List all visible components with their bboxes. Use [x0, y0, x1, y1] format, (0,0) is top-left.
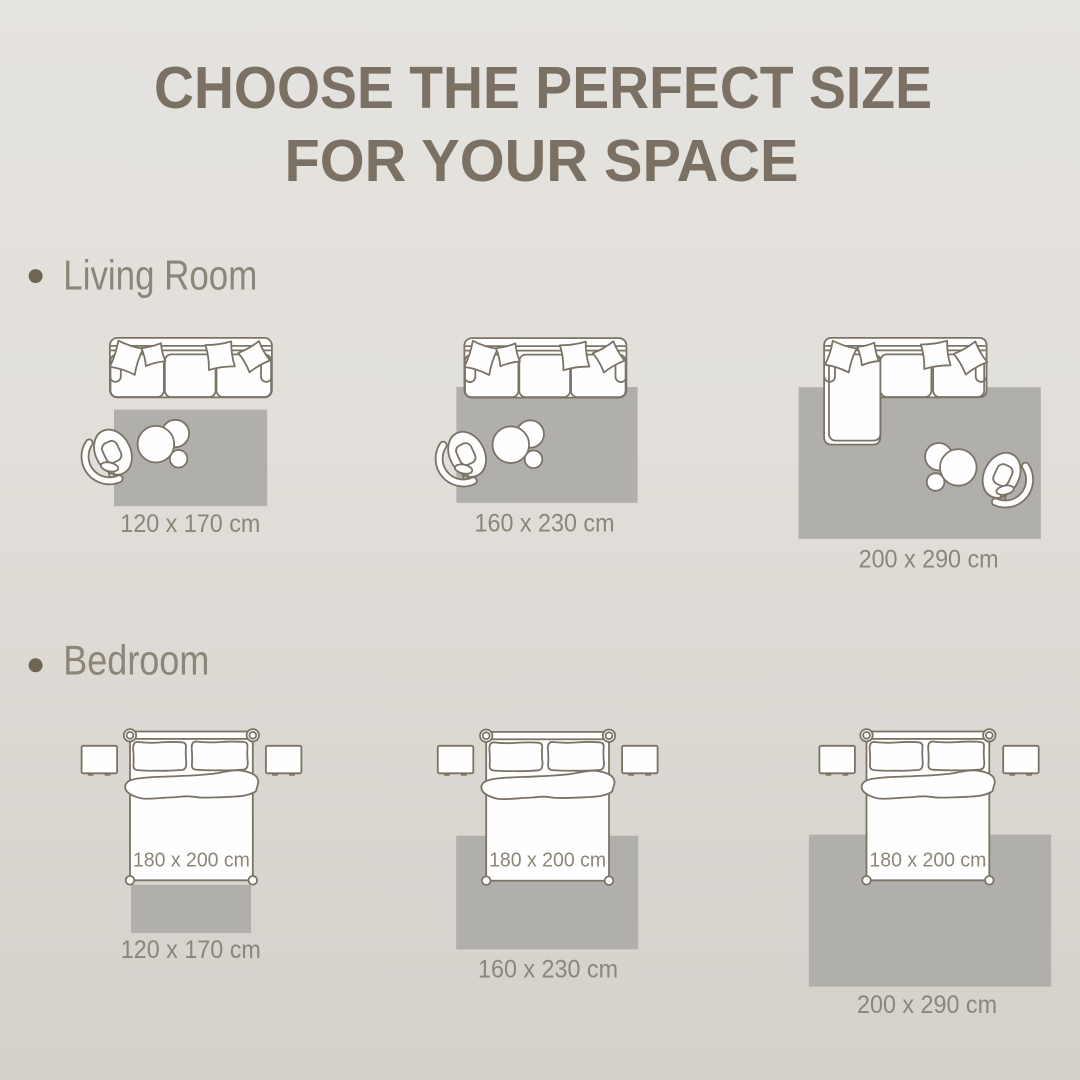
svg-text:FOR YOUR SPACE: FOR YOUR SPACE: [285, 128, 799, 194]
svg-text:160 x 230 cm: 160 x 230 cm: [475, 510, 615, 538]
svg-text:Bedroom: Bedroom: [63, 636, 209, 683]
svg-text:CHOOSE THE PERFECT SIZE: CHOOSE THE PERFECT SIZE: [154, 55, 932, 121]
svg-text:200 x 290 cm: 200 x 290 cm: [859, 546, 999, 574]
svg-text:120 x 170 cm: 120 x 170 cm: [121, 936, 261, 964]
svg-text:160 x 230 cm: 160 x 230 cm: [478, 956, 618, 984]
svg-text:200 x 290 cm: 200 x 290 cm: [857, 991, 997, 1019]
svg-text:Living Room: Living Room: [63, 251, 257, 298]
svg-text:120 x 170 cm: 120 x 170 cm: [120, 510, 260, 538]
